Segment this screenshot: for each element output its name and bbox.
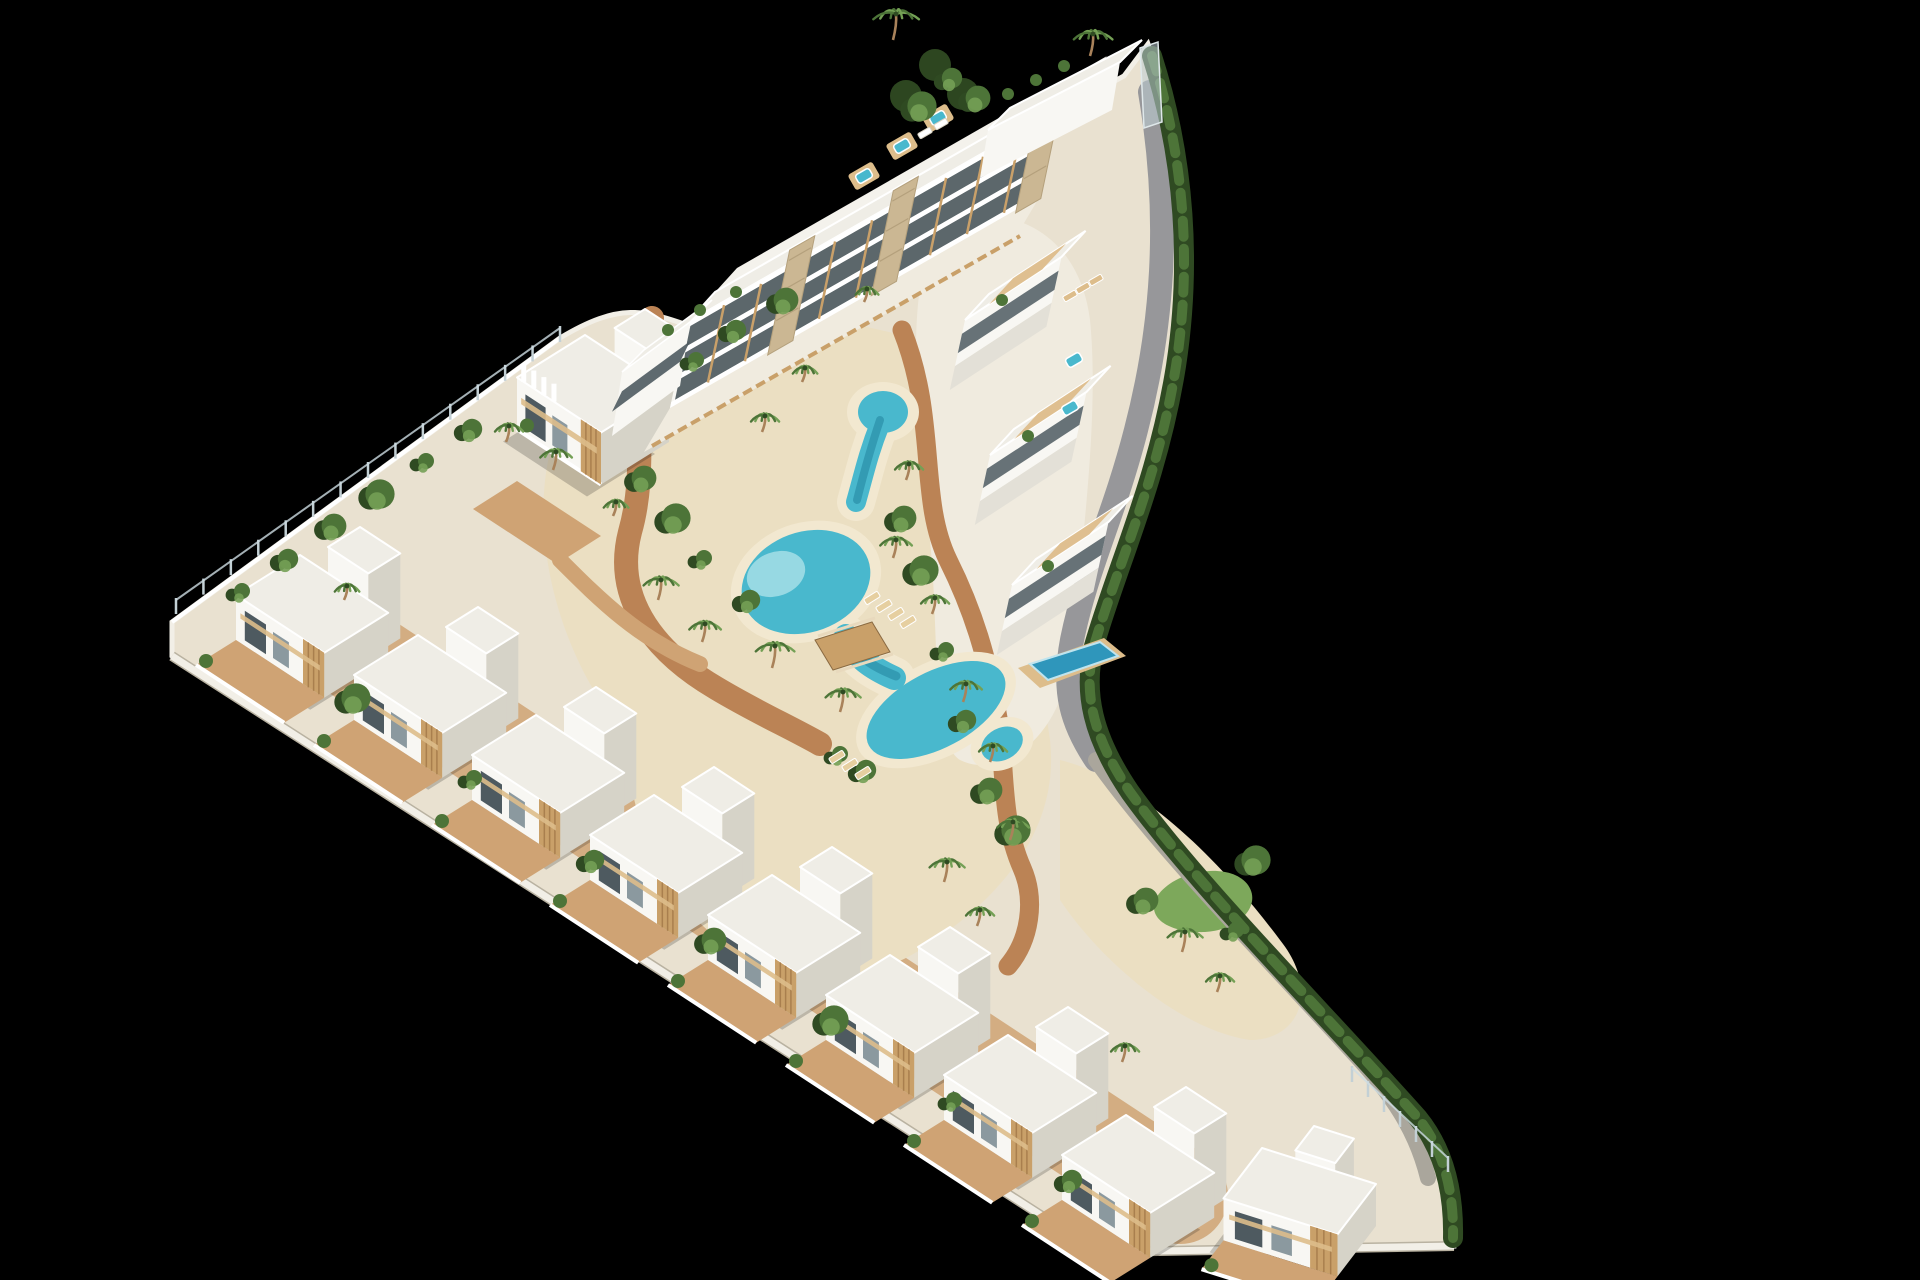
roof-lounger xyxy=(917,127,932,139)
palm-crown xyxy=(659,578,664,583)
parapet-planter xyxy=(662,324,674,336)
palm-crown xyxy=(894,12,899,17)
palm-trunk xyxy=(1090,34,1093,56)
bush xyxy=(696,560,706,570)
bush xyxy=(466,780,476,790)
bush xyxy=(1244,858,1262,876)
bush xyxy=(324,526,339,541)
render-canvas xyxy=(0,0,1920,1280)
palm-crown xyxy=(345,584,350,589)
palm-crown xyxy=(763,414,768,419)
palm-frond xyxy=(873,13,896,20)
bush xyxy=(234,593,244,603)
palm-crown xyxy=(554,450,559,455)
palm-crown xyxy=(1091,32,1096,37)
palm-crown xyxy=(964,682,969,687)
bush xyxy=(946,1102,956,1112)
palm-crown xyxy=(703,622,708,627)
parapet-planter xyxy=(730,286,742,298)
palm-crown xyxy=(507,424,512,429)
terrace-planter xyxy=(435,814,449,828)
terrace-planter xyxy=(317,734,331,748)
palm-crown xyxy=(978,908,983,913)
terrace-planter xyxy=(1025,1214,1039,1228)
bush xyxy=(727,331,739,343)
palm-tree xyxy=(873,9,919,40)
palm-crown xyxy=(1218,974,1223,979)
terrace-planter xyxy=(1042,560,1054,572)
terrace-planter xyxy=(789,1054,803,1068)
bush xyxy=(741,601,753,613)
parapet-planter xyxy=(1030,74,1042,86)
bush xyxy=(344,696,362,714)
bush xyxy=(1228,932,1238,942)
palm-crown xyxy=(841,690,846,695)
parapet-planter xyxy=(694,304,706,316)
palm-crown xyxy=(933,596,938,601)
palm-crown xyxy=(865,287,870,292)
bush xyxy=(1136,900,1151,915)
bush xyxy=(968,98,983,113)
parapet-planter xyxy=(1002,88,1014,100)
site-plan-render xyxy=(0,0,1920,1280)
bush xyxy=(894,518,909,533)
palm-trunk xyxy=(893,14,896,40)
bush xyxy=(912,568,930,586)
terrace-planter xyxy=(1022,430,1034,442)
bush xyxy=(1063,1181,1075,1193)
palm-crown xyxy=(773,644,778,649)
bush xyxy=(368,492,386,510)
palm-crown xyxy=(1011,820,1016,825)
palm-frond xyxy=(896,11,912,19)
terrace-planter xyxy=(996,294,1008,306)
terrace-planter xyxy=(671,974,685,988)
bush xyxy=(938,652,948,662)
palm-frond xyxy=(1074,33,1093,40)
palm-crown xyxy=(907,462,912,467)
bush xyxy=(776,300,791,315)
bush xyxy=(634,478,649,493)
terrace-planter xyxy=(199,654,213,668)
bush xyxy=(957,721,969,733)
bush xyxy=(822,1018,840,1036)
bush xyxy=(943,79,955,91)
palm-crown xyxy=(614,500,619,505)
bush xyxy=(910,104,928,122)
parapet-planter xyxy=(1058,60,1070,72)
palm-crown xyxy=(803,366,808,371)
palm-crown xyxy=(945,860,950,865)
bush xyxy=(704,940,719,955)
palm-tree xyxy=(1074,30,1113,56)
bush xyxy=(418,463,428,473)
glass-boundary-wall xyxy=(1140,42,1162,128)
terrace-planter xyxy=(553,894,567,908)
palm-crown xyxy=(991,744,996,749)
terrace-planter xyxy=(907,1134,921,1148)
bush xyxy=(279,560,291,572)
bush-cluster xyxy=(1234,845,1270,875)
bush xyxy=(980,790,995,805)
bush xyxy=(664,516,682,534)
palm-crown xyxy=(1183,930,1188,935)
terrace-planter xyxy=(1205,1258,1219,1272)
palm-crown xyxy=(894,538,899,543)
bush xyxy=(463,430,475,442)
bush xyxy=(585,861,597,873)
bush xyxy=(688,362,698,372)
palm-crown xyxy=(1123,1044,1128,1049)
